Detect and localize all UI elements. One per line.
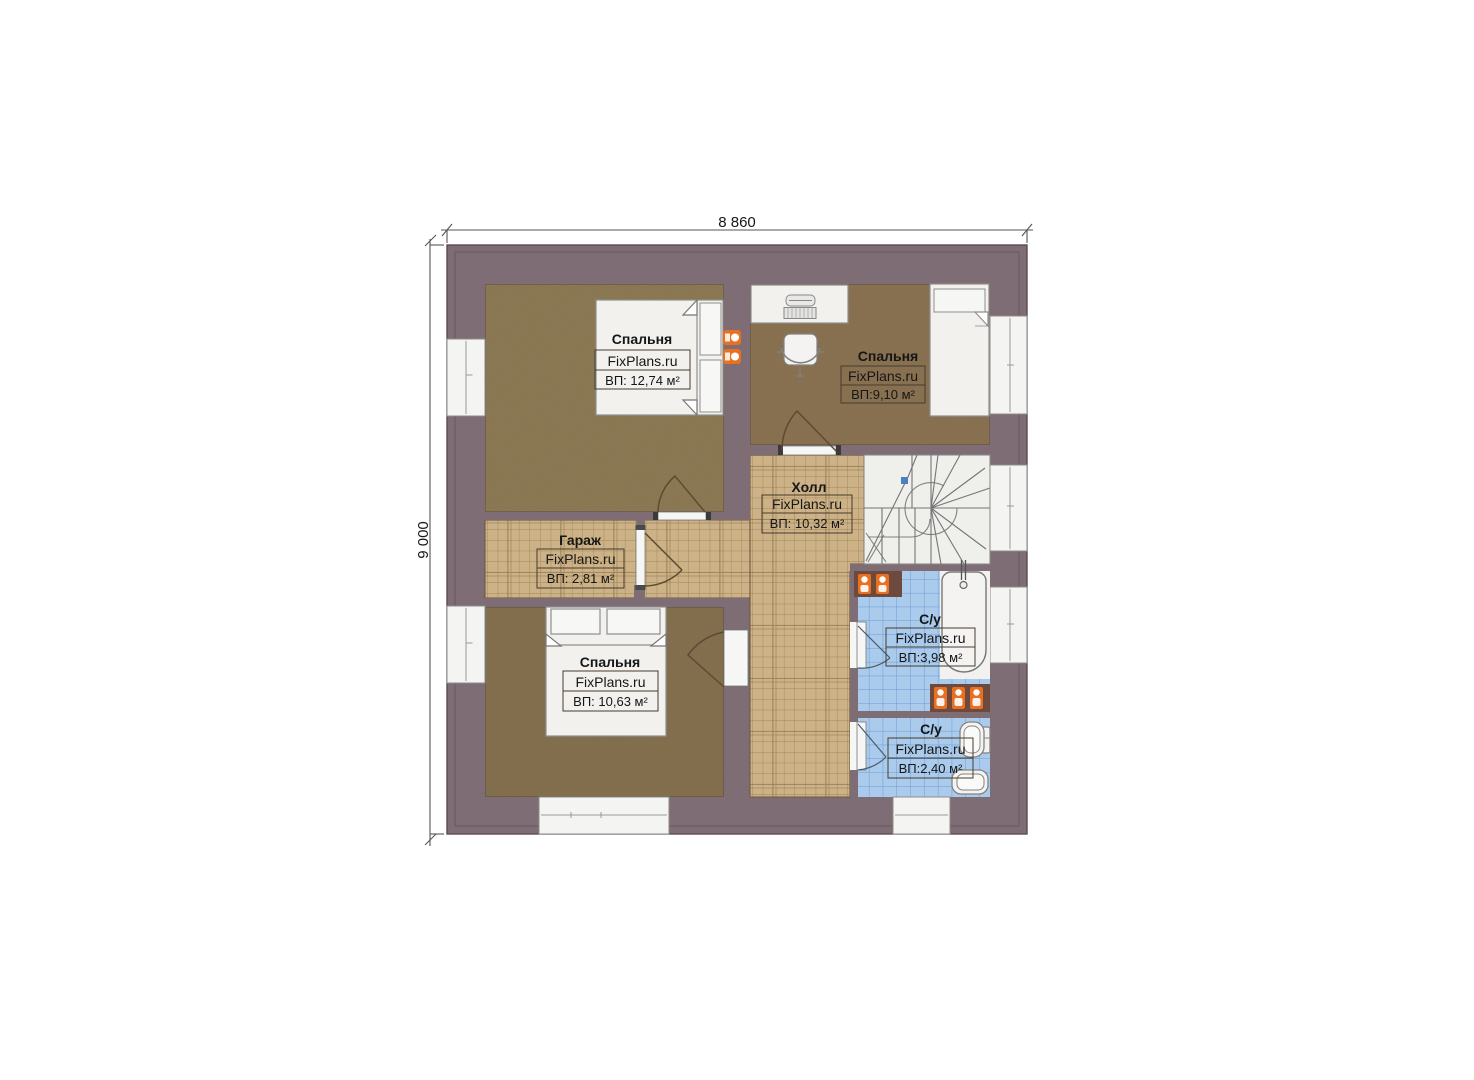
svg-text:9 000: 9 000 (415, 521, 432, 559)
svg-text:ВП: 2,81 м²: ВП: 2,81 м² (547, 571, 615, 586)
svg-text:С/у: С/у (919, 611, 941, 627)
svg-text:FixPlans.ru: FixPlans.ru (895, 741, 965, 757)
svg-text:ВП:2,40 м²: ВП:2,40 м² (899, 761, 963, 776)
svg-text:FixPlans.ru: FixPlans.ru (607, 353, 677, 369)
svg-text:Холл: Холл (791, 479, 826, 495)
svg-text:Спальня: Спальня (858, 348, 918, 364)
svg-text:ВП:9,10 м²: ВП:9,10 м² (851, 387, 915, 402)
svg-text:С/у: С/у (920, 721, 942, 737)
svg-text:Гараж: Гараж (559, 532, 602, 548)
svg-text:8 860: 8 860 (718, 214, 756, 231)
svg-text:ВП: 10,63 м²: ВП: 10,63 м² (573, 694, 648, 709)
svg-text:FixPlans.ru: FixPlans.ru (545, 551, 615, 567)
svg-text:ВП: 12,74 м²: ВП: 12,74 м² (605, 373, 680, 388)
svg-text:Спальня: Спальня (612, 331, 672, 347)
svg-text:Спальня: Спальня (580, 654, 640, 670)
svg-text:ВП:3,98 м²: ВП:3,98 м² (899, 650, 963, 665)
svg-text:FixPlans.ru: FixPlans.ru (575, 674, 645, 690)
svg-text:FixPlans.ru: FixPlans.ru (848, 368, 918, 384)
svg-text:FixPlans.ru: FixPlans.ru (772, 496, 842, 512)
svg-text:ВП: 10,32 м²: ВП: 10,32 м² (770, 516, 845, 531)
svg-text:FixPlans.ru: FixPlans.ru (895, 630, 965, 646)
